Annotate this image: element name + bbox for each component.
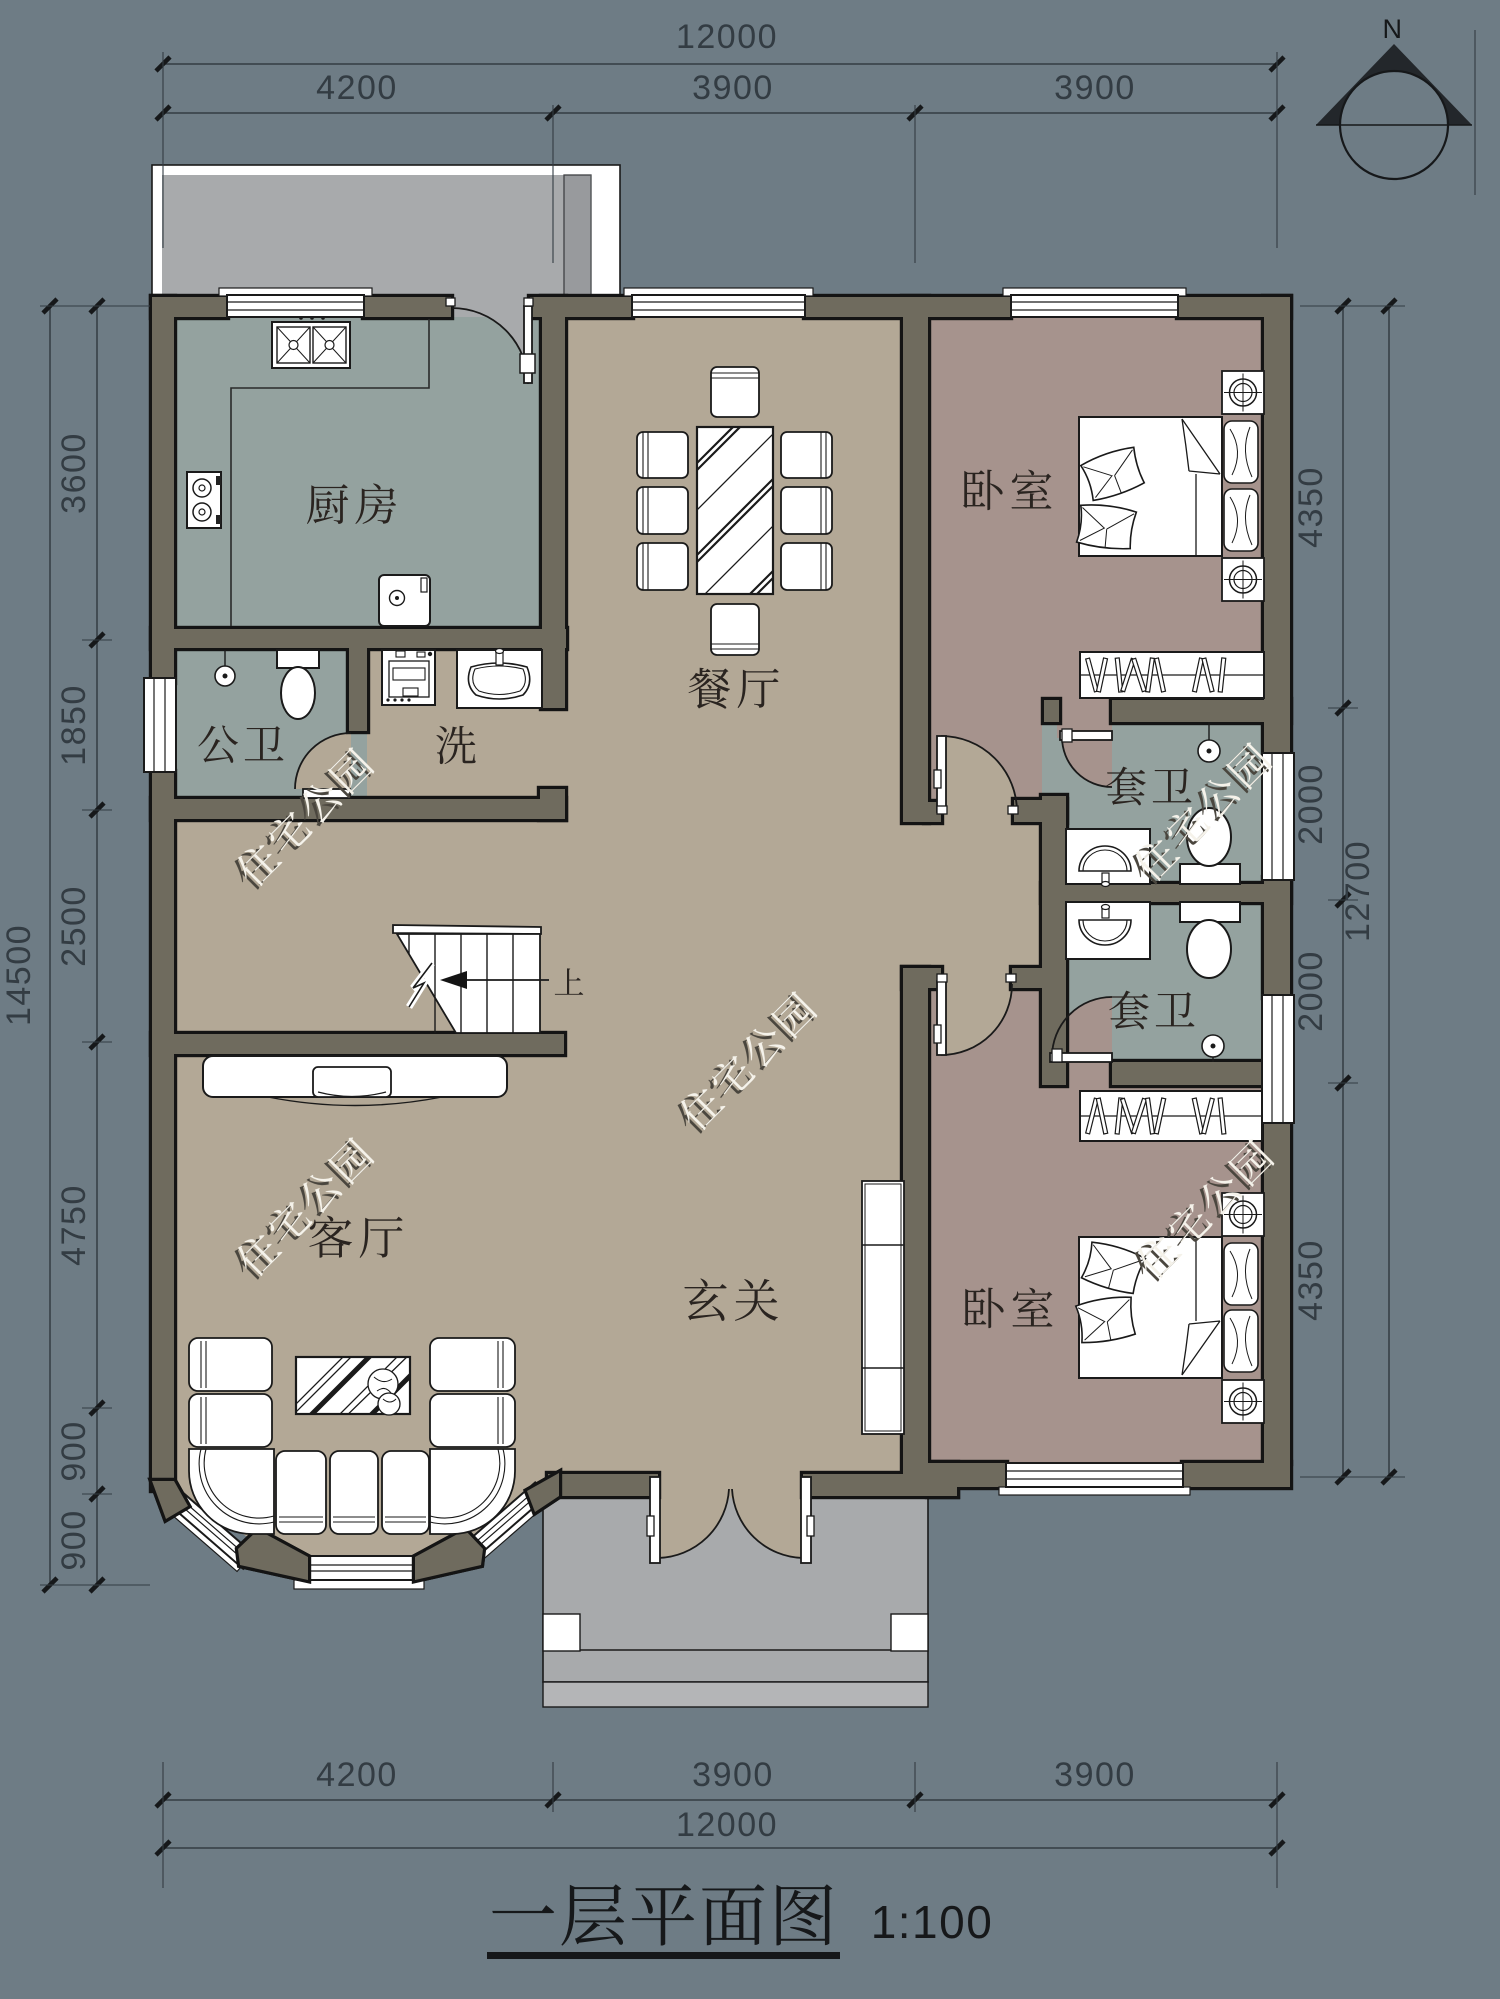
svg-text:4350: 4350	[1292, 466, 1330, 548]
svg-text:4350: 4350	[1292, 1239, 1330, 1321]
svg-text:4200: 4200	[316, 69, 398, 107]
svg-text:12000: 12000	[676, 1806, 778, 1844]
svg-text:3600: 3600	[55, 432, 93, 514]
svg-text:4750: 4750	[55, 1184, 93, 1266]
svg-text:2000: 2000	[1292, 950, 1330, 1032]
svg-text:2500: 2500	[55, 885, 93, 967]
svg-text:900: 900	[55, 1509, 93, 1570]
svg-text:1:100: 1:100	[871, 1896, 994, 1948]
svg-text:3900: 3900	[692, 1756, 774, 1794]
svg-text:1850: 1850	[55, 684, 93, 766]
svg-text:900: 900	[55, 1420, 93, 1481]
svg-text:N: N	[1383, 14, 1404, 44]
svg-text:3900: 3900	[1054, 69, 1136, 107]
svg-text:3900: 3900	[1054, 1756, 1136, 1794]
svg-text:2000: 2000	[1292, 763, 1330, 845]
svg-text:14500: 14500	[0, 924, 38, 1026]
svg-text:4200: 4200	[316, 1756, 398, 1794]
svg-text:12000: 12000	[676, 18, 778, 56]
svg-text:3900: 3900	[692, 69, 774, 107]
svg-text:12700: 12700	[1339, 840, 1377, 942]
